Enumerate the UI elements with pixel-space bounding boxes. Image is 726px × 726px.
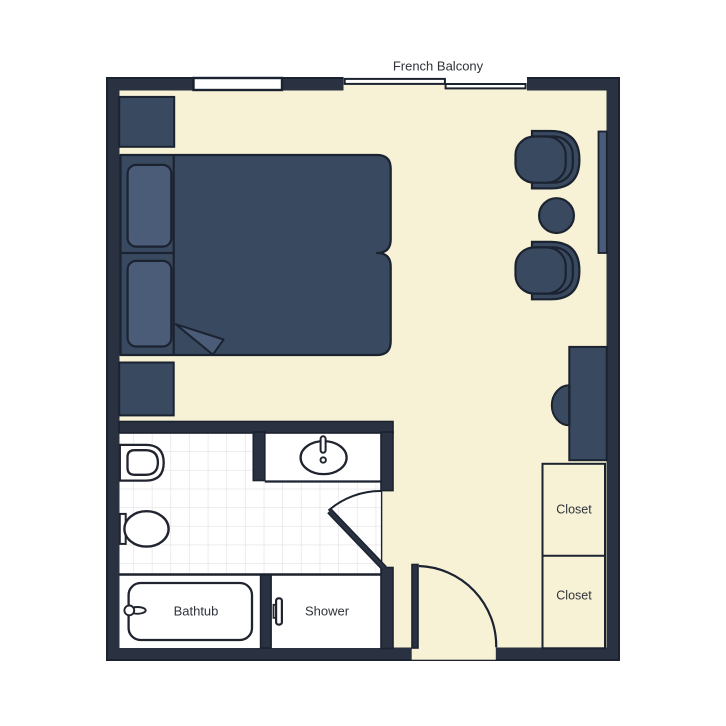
svg-text:Bathtub: Bathtub [174, 604, 219, 619]
svg-text:Closet: Closet [556, 589, 592, 603]
svg-text:Closet: Closet [556, 503, 592, 517]
svg-text:Shower: Shower [305, 604, 350, 619]
svg-text:French Balcony: French Balcony [393, 59, 484, 74]
